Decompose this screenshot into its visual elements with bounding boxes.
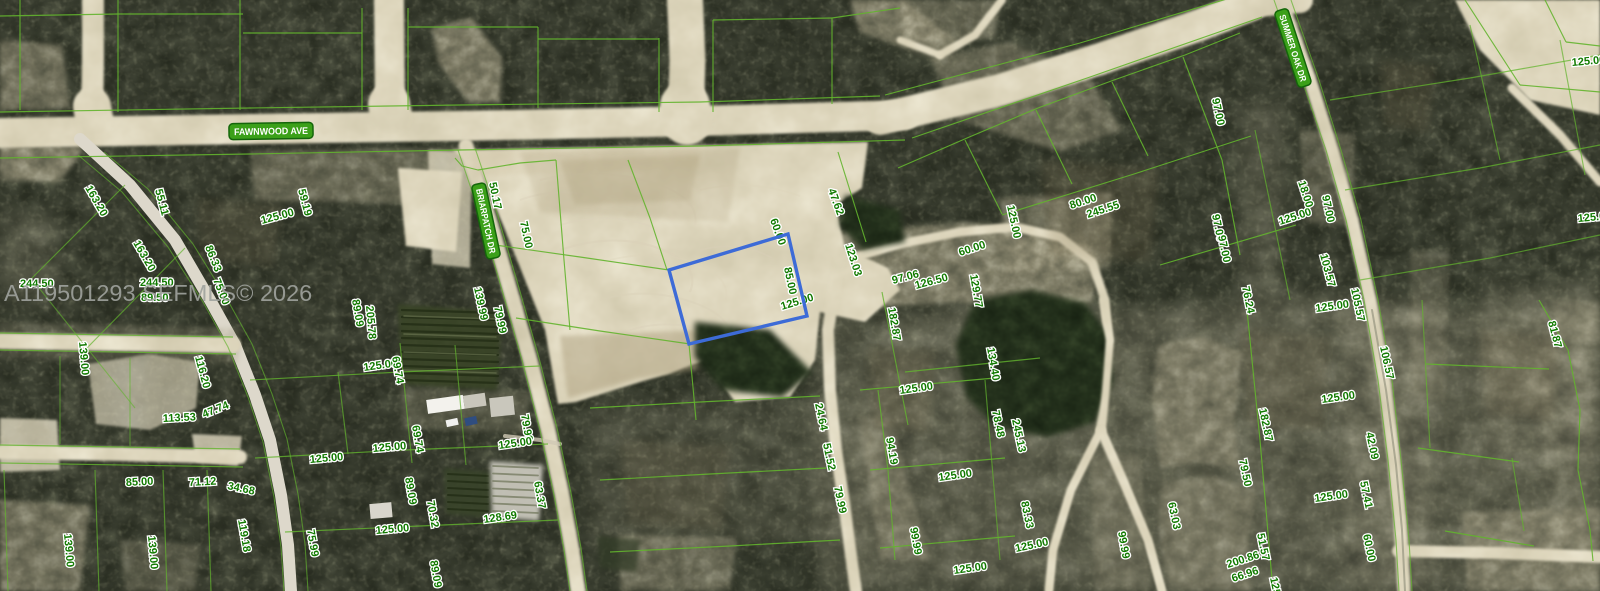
svg-text:113.53: 113.53 bbox=[163, 411, 197, 425]
svg-text:FAWNWOOD AVE: FAWNWOOD AVE bbox=[234, 126, 309, 138]
svg-text:125.00: 125.00 bbox=[1577, 210, 1600, 225]
svg-text:125.00: 125.00 bbox=[1571, 54, 1600, 69]
svg-text:71.12: 71.12 bbox=[189, 476, 217, 489]
svg-text:A119501293 SEFMLS© 2026: A119501293 SEFMLS© 2026 bbox=[4, 280, 312, 306]
svg-text:85.00: 85.00 bbox=[126, 476, 154, 489]
